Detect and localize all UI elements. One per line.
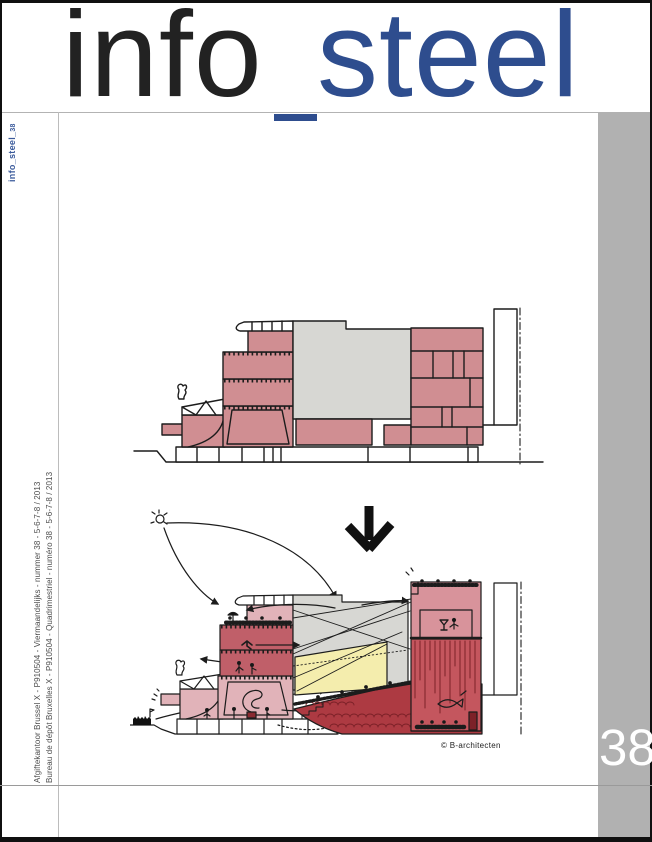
magazine-cover: info steel 38 info_steel_38 Afgiftekanto… [0,0,652,842]
chimney-squiggle [176,660,185,675]
daylight-arrow-short [164,528,218,604]
architect-credit: © B-architecten [441,741,501,750]
plinth [176,447,478,462]
chimney-squiggle [178,384,187,399]
masthead: info steel [0,0,652,112]
issue-number: 38 [599,722,651,773]
chimney-outline [494,583,517,695]
margin-vertical-rule [58,112,59,838]
roof-nose [236,321,293,331]
page-border-bottom [0,837,652,842]
footer-rule [0,785,652,786]
page-border-top [0,0,652,3]
spine-logo-number: 38 [10,123,17,131]
postal-line-dutch: Afgiftekantoor Brussel X - P910504 - Vie… [33,482,42,783]
page-border-left [0,0,2,842]
daylight-arrow-long [167,523,336,598]
chimney-outline [494,309,517,425]
transform-down-arrow-icon [348,506,391,549]
truss [180,674,223,689]
gray-volume [293,321,411,419]
masthead-word-steel: steel [317,0,580,115]
street-crowd [133,716,151,725]
spine-logo-text: info_steel_ [7,132,17,182]
masthead-underscore [274,114,317,121]
massing-section-diagram [130,288,554,484]
truss [182,399,225,415]
masthead-word-info: info [62,0,263,115]
left-annex [162,424,183,435]
annotated-section-diagram [130,498,554,770]
masthead-divider-rule [0,112,652,113]
postal-line-french: Bureau de dépôt Bruxelles X - P910504 - … [45,472,54,783]
spine-logo: info_steel_38 [7,123,17,182]
sun-sketch-icon [151,510,167,524]
chimney-arrow [201,659,222,662]
